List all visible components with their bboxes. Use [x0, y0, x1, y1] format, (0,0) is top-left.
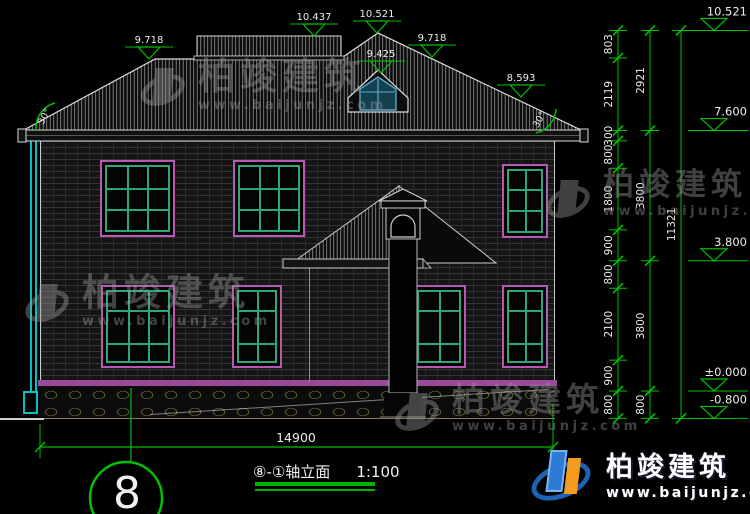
dim-label: 803: [603, 34, 615, 54]
window: [502, 164, 548, 238]
window-transom: [419, 310, 459, 312]
title-underline: [255, 482, 375, 486]
brand-url: www.baijunjz.com: [606, 486, 750, 500]
elev-label: 7.600: [714, 105, 747, 119]
watermark-logo-icon: [138, 62, 190, 114]
elev-triangle: [701, 379, 727, 391]
dim-label: 900: [603, 366, 615, 386]
window: [412, 285, 466, 368]
window-sash: [507, 169, 543, 233]
downspout-boot: [23, 391, 38, 414]
elev-triangle: [701, 119, 727, 131]
dim-slash: [645, 413, 655, 423]
elev-label: -0.800: [710, 392, 747, 406]
dim-slash: [613, 53, 623, 63]
window-transom: [108, 343, 168, 345]
elev-triangle: [701, 249, 727, 261]
downspout-pipe: [30, 141, 37, 391]
window: [232, 285, 282, 368]
dormer-window: [360, 77, 396, 110]
window-mullion: [257, 292, 259, 361]
dim-label: 2921: [635, 67, 647, 94]
window: [101, 285, 175, 368]
roof-marker-label: 10.521: [360, 9, 395, 20]
dim-label: 300: [603, 126, 615, 146]
brand-logo-icon: [528, 446, 600, 508]
roof-marker-triangle: [366, 21, 388, 33]
watermark-url: www.baijunjz.com: [198, 99, 387, 112]
window-transom: [239, 310, 275, 312]
roof-marker-triangle: [303, 24, 325, 36]
window-transom: [509, 210, 541, 212]
window-transom: [107, 188, 168, 190]
window-sash: [237, 290, 277, 363]
dim-slash: [613, 225, 623, 235]
window-transom: [419, 343, 459, 345]
porch-corner-line: [309, 268, 310, 382]
dim-label: 800: [603, 395, 615, 415]
dim-slash: [676, 413, 686, 423]
window-mullion: [128, 292, 130, 361]
dim-label: 800: [635, 395, 647, 415]
window-mullion: [148, 292, 150, 361]
watermark-brand: 柏竣建筑: [198, 58, 387, 95]
angle-arc-right: [536, 109, 556, 133]
window-sash: [238, 165, 300, 232]
dim-label: 2119: [603, 81, 615, 108]
roof-marker-triangle: [421, 45, 443, 57]
title-underline-thin: [255, 489, 375, 491]
dim-label: 1800: [603, 186, 615, 213]
angle-label-right: 30°: [531, 110, 549, 130]
ridge-strip: [197, 36, 341, 56]
window: [100, 160, 175, 237]
window-mullion: [259, 167, 261, 230]
roof-marker-triangle: [370, 61, 392, 73]
main-roof: [22, 33, 583, 131]
window-transom: [108, 310, 168, 312]
dim-slash: [613, 25, 623, 35]
dim-label: 900: [603, 235, 615, 255]
title-scale: 1:100: [356, 463, 399, 481]
dim-slash: [613, 163, 623, 173]
roof-marker-label: 9.718: [135, 35, 164, 46]
dim-slash: [613, 283, 623, 293]
ground-line: [0, 418, 44, 420]
elev-triangle: [701, 406, 727, 418]
roof-marker-label: 10.437: [297, 12, 332, 23]
window-mullion: [525, 292, 527, 361]
width-dim-label: 14900: [276, 430, 316, 445]
dim-label: 800: [603, 264, 615, 284]
window: [502, 285, 548, 368]
dim-slash: [613, 355, 623, 365]
window-transom: [239, 343, 275, 345]
axis-number: 8: [101, 468, 153, 514]
window-transom: [240, 188, 298, 190]
roof-marker-triangle: [510, 85, 532, 97]
elev-label: ±0.000: [704, 365, 747, 379]
window-transom: [240, 209, 298, 211]
dim-slash: [645, 256, 655, 266]
roof-marker-label: 9.718: [418, 33, 447, 44]
dim-label: 3800: [635, 182, 647, 209]
roof-marker-label: 9.425: [367, 49, 396, 60]
roof-marker-triangle: [138, 47, 160, 59]
dim-label: 2100: [603, 311, 615, 338]
brand-name: 柏竣建筑: [606, 454, 750, 481]
dim-label: 800: [603, 145, 615, 165]
window-sash: [417, 290, 461, 363]
roof-marker-label: 8.593: [507, 73, 536, 84]
ridge-strip-lip: [194, 56, 344, 60]
window-mullion: [525, 171, 527, 231]
eave-fascia: [20, 130, 586, 141]
dim-slash: [645, 386, 655, 396]
title-text: ⑧-①轴立面: [253, 463, 330, 481]
watermark: 柏竣建筑 www.baijunjz.com: [138, 58, 387, 114]
dim-slash: [613, 386, 623, 396]
window-mullion: [127, 167, 129, 230]
elev-label: 3.800: [714, 235, 747, 249]
dim-slash: [613, 126, 623, 136]
dormer-gable: [348, 70, 408, 112]
dim-label: 3800: [635, 313, 647, 340]
angle-label-left: 30°: [36, 107, 54, 127]
elev-label: 10.521: [707, 4, 747, 18]
dim-slash: [613, 256, 623, 266]
stone-foundation: [40, 386, 555, 419]
window-transom: [107, 209, 168, 211]
window: [233, 160, 305, 237]
angle-arc-left: [36, 103, 55, 130]
dim-slash: [613, 136, 623, 146]
dim-label: 11321: [666, 208, 678, 241]
window-mullion: [439, 292, 441, 361]
window-mullion: [278, 167, 280, 230]
window-transom: [509, 343, 541, 345]
drawing-title: ⑧-①轴立面1:100: [253, 461, 400, 482]
elevation-drawing-sheet: 8009002100800900180080030021198038003800…: [0, 0, 750, 514]
window-sash: [507, 290, 543, 363]
elev-triangle: [701, 18, 727, 30]
dim-slash: [645, 25, 655, 35]
window-mullion: [147, 167, 149, 230]
dim-slash: [645, 126, 655, 136]
plinth-band: [38, 380, 557, 386]
dim-slash: [676, 25, 686, 35]
window-sash: [105, 165, 170, 232]
brand-logo: 柏竣建筑 www.baijunjz.com: [528, 444, 746, 510]
window-transom: [509, 189, 541, 191]
window-transom: [509, 310, 541, 312]
window-sash: [106, 290, 170, 363]
dim-slash: [613, 413, 623, 423]
watermark: 柏竣建筑 www.baijunjz.com: [543, 170, 750, 226]
